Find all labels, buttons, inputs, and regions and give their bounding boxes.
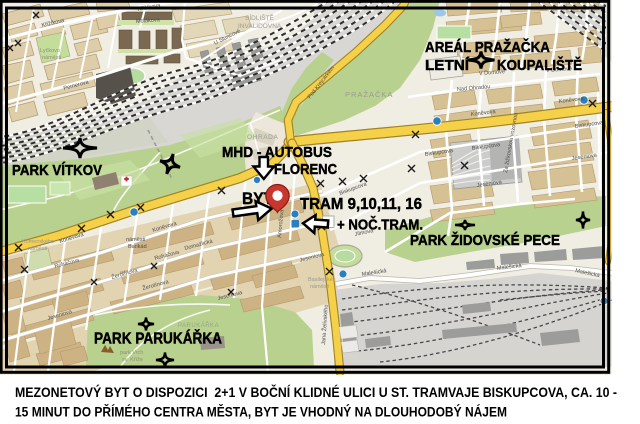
svg-text:+ NOČ.TRAM.: + NOČ.TRAM. bbox=[337, 216, 423, 234]
svg-text:15 MINUT DO PŘÍMÉHO CENTRA MĚS: 15 MINUT DO PŘÍMÉHO CENTRA MĚSTA, BYT JE… bbox=[15, 405, 507, 420]
svg-text:sv. Kříže: sv. Kříže bbox=[122, 357, 143, 363]
svg-text:Basilejské: Basilejské bbox=[308, 277, 333, 283]
svg-text:OHRADA: OHRADA bbox=[247, 134, 278, 141]
svg-text:FLORENC: FLORENC bbox=[274, 161, 337, 178]
svg-text:PARK PARUKÁŘKA: PARK PARUKÁŘKA bbox=[94, 330, 222, 348]
svg-text:SÍDLIŠTĚ: SÍDLIŠTĚ bbox=[245, 13, 275, 22]
svg-text:Lyčkovo: Lyčkovo bbox=[40, 48, 60, 54]
svg-text:náměstí: náměstí bbox=[126, 237, 146, 243]
svg-text:náměstí: náměstí bbox=[310, 284, 330, 290]
svg-text:KOUPALIŠTĚ: KOUPALIŠTĚ bbox=[497, 56, 582, 74]
svg-text:PARK VÍTKOV: PARK VÍTKOV bbox=[12, 162, 102, 179]
svg-text:INVALIDOVNA: INVALIDOVNA bbox=[238, 23, 282, 30]
svg-text:náměstí: náměstí bbox=[28, 246, 48, 252]
svg-text:LETNÍ: LETNÍ bbox=[425, 57, 470, 74]
svg-text:TRAM 9,10,11, 16: TRAM 9,10,11, 16 bbox=[300, 196, 422, 213]
svg-text:PARK ŽIDOVSKÉ PECE: PARK ŽIDOVSKÉ PECE bbox=[410, 231, 560, 249]
svg-text:Barikád: Barikád bbox=[128, 244, 147, 250]
svg-text:MHD - AUTOBUS: MHD - AUTOBUS bbox=[222, 144, 332, 161]
svg-text:PARUKÁŘKA: PARUKÁŘKA bbox=[178, 321, 219, 329]
svg-text:MEZONETOVÝ BYT O DISPOZICI 2+: MEZONETOVÝ BYT O DISPOZICI 2+1 V BOČNÍ K… bbox=[15, 385, 617, 400]
svg-text:PRAŽAČKA: PRAŽAČKA bbox=[345, 90, 393, 99]
svg-text:Komenského: Komenského bbox=[22, 239, 54, 245]
svg-text:náměstí: náměstí bbox=[42, 55, 62, 61]
svg-text:park Vrch: park Vrch bbox=[120, 350, 143, 356]
svg-text:AREÁL PRAŽAČKA: AREÁL PRAŽAČKA bbox=[425, 38, 550, 56]
